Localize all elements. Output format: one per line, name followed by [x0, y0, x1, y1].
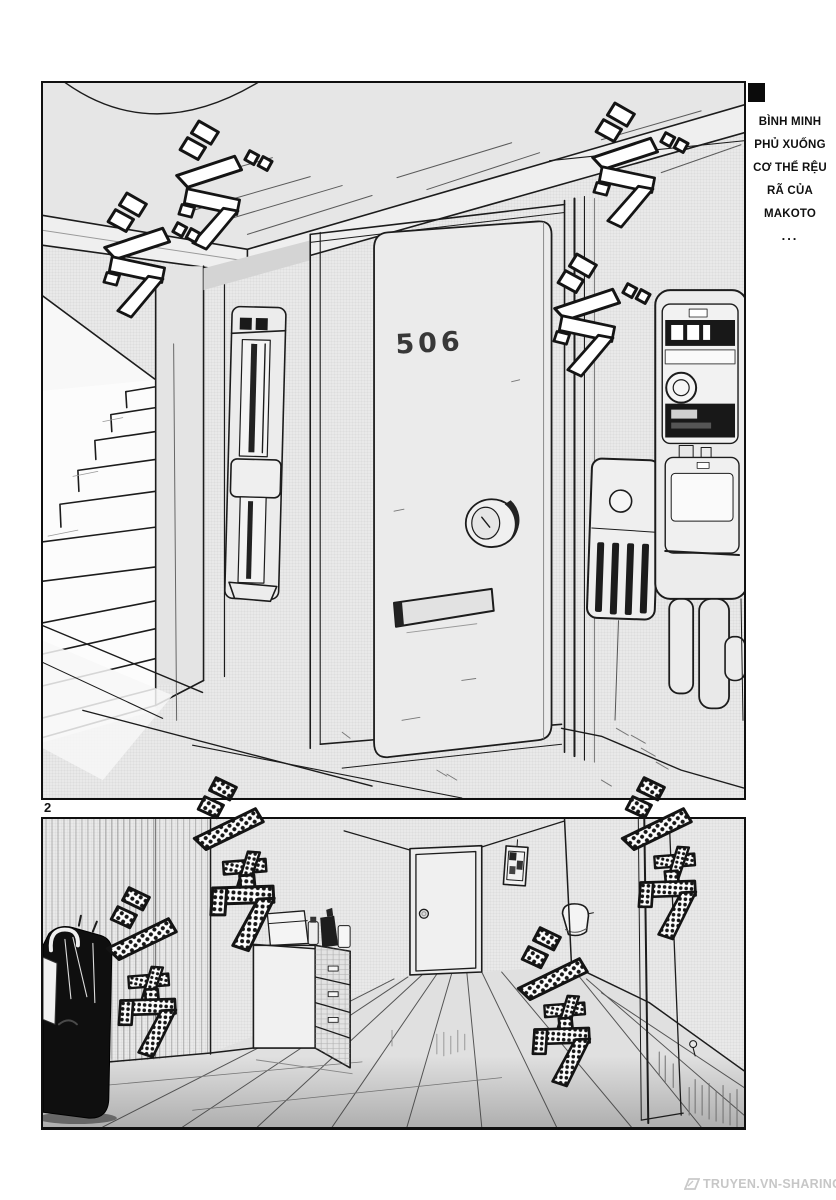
side-caption: BÌNH MINH PHỦ XUỐNG CƠ THỂ RỆU RÃ CỦA MA…	[744, 83, 836, 246]
page-number: 2	[44, 799, 51, 816]
section-marker	[748, 83, 765, 102]
box-on-cabinet	[267, 911, 308, 946]
wall-sconce	[563, 904, 594, 936]
door-506	[342, 221, 551, 780]
shoe-cabinet	[253, 908, 352, 1074]
door-stopper	[690, 1041, 697, 1048]
caption-ellipsis: ...	[744, 226, 836, 246]
back-door-knob	[419, 909, 428, 918]
panel-exterior-hallway: 506	[41, 81, 746, 800]
panel2-artwork	[43, 819, 744, 1127]
watermark-logo-icon	[684, 1176, 700, 1192]
manga-page: 506	[0, 0, 836, 1200]
panel-interior-corridor	[41, 817, 746, 1130]
back-door	[344, 821, 564, 975]
caption-line: BÌNH MINH	[744, 111, 836, 134]
wall-light-fixture	[225, 306, 287, 601]
watermark-text: TRUYEN.VN-SHARING.NET	[703, 1177, 836, 1191]
caption-line: PHỦ XUỐNG	[744, 134, 836, 157]
watermark: TRUYEN.VN-SHARING.NET	[684, 1176, 836, 1192]
caption-line: RÃ CỦA	[744, 180, 836, 203]
picture-frame	[503, 839, 528, 886]
electric-meter	[655, 290, 744, 720]
caption-line: CƠ THỂ RỆU	[744, 157, 836, 180]
door-knob	[466, 499, 520, 547]
panel1-artwork: 506	[43, 83, 744, 798]
dark-bottle	[320, 916, 338, 948]
door-number: 506	[395, 326, 465, 360]
umbrella-stand	[43, 916, 117, 1124]
caption-line: MAKOTO	[744, 203, 836, 226]
